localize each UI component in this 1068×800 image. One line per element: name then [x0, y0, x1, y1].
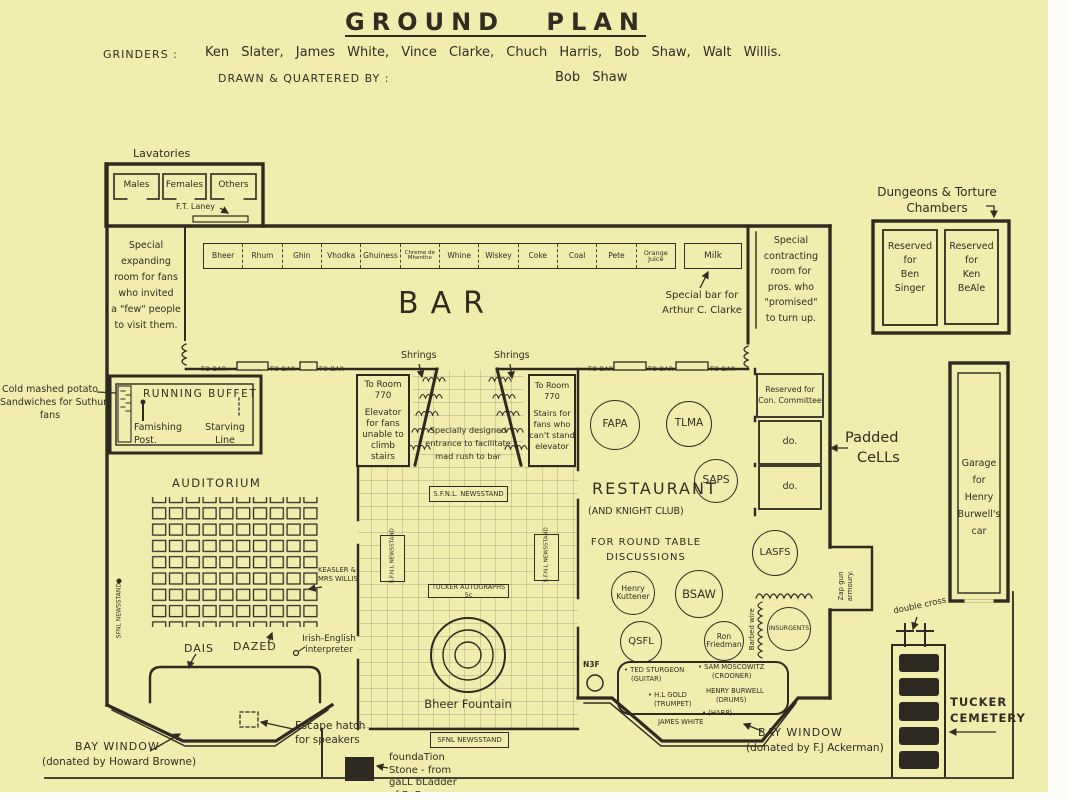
drawn-by-name: Bob Shaw — [555, 70, 627, 86]
shelf-item: Coal — [557, 244, 596, 268]
knight-club-subtitle: (AND KNIGHT CLUB) — [588, 506, 684, 517]
entrance-note: Specially designed entrance to facilitat… — [418, 424, 518, 463]
shelf-item: Coke — [518, 244, 557, 268]
band-james-white: (HARP) JAMES WHITE — [658, 709, 732, 726]
barbed-wire-label: Barbed wire — [748, 597, 756, 661]
auditorium-title: AUDITORIUM — [172, 477, 261, 491]
room-males-label: Males — [114, 180, 159, 191]
round-table-note: FOR ROUND TABLE DISCUSSIONS — [590, 535, 702, 565]
band-henry-burwell: HENRY BURWELL (DRUMS) — [706, 687, 764, 704]
band-hl-gold: H.L GOLD (TRUMPET) — [648, 691, 692, 708]
auditorium-seats — [150, 497, 318, 627]
table-qsfl: QSFL — [620, 621, 662, 663]
ground-plan-page: GROUND PLAN GRINDERS : Ken Slater, James… — [0, 0, 1068, 800]
newsstand-top: S.F.N.L. NEWSSTAND — [429, 486, 508, 502]
to-bar-label: TO BAR — [588, 366, 614, 373]
shelf-item: Ghuiness — [360, 244, 399, 268]
table-insurgents: INSURGENTS — [767, 607, 811, 651]
con-committee-cell: Reserved for Con. Committee — [757, 384, 823, 406]
tucker-autographs-stand: TUCKER AUTOGRAPHS 5c — [428, 584, 509, 598]
auditorium-newsstand-label: SFNL NEWSSTAND — [115, 581, 122, 641]
keasler-willis-label: KEASLER & MRS WILLIS — [318, 566, 358, 584]
shelf-item: Wiskey — [478, 244, 517, 268]
shelf-item: Chreme de Mhenthe — [400, 244, 439, 268]
escape-hatch-label: Escape hatch for speakers — [295, 719, 365, 747]
table-lasfs: LASFS — [752, 530, 798, 576]
zap-gun-armoury-label: Zap gun armoury. — [837, 556, 855, 616]
laney-label: F.T. Laney — [176, 202, 215, 212]
mashed-potato-note: Cold mashed potato Sandwiches for Suthun… — [0, 383, 100, 422]
table-n3f-label: N3F — [583, 660, 600, 669]
to-bar-label: TO BAR — [319, 366, 345, 373]
to-bar-label: TO BAR — [648, 366, 674, 373]
dazed-label: DAZED — [233, 640, 277, 653]
shelf-item: Rhum — [242, 244, 281, 268]
contracting-room-note: Special contracting room for pros. who "… — [754, 233, 828, 326]
page-margin-bottom — [0, 792, 1068, 800]
elevator-room-label: To Room 770 Elevator for fans unable to … — [357, 380, 409, 463]
room-females-label: Females — [163, 180, 206, 191]
to-bar-label: TO BAR — [201, 366, 227, 373]
springs-label-right: Shrings — [494, 350, 530, 361]
page-title: GROUND PLAN — [345, 8, 646, 37]
drawn-by-label: DRAWN & QUARTERED BY : — [218, 72, 389, 85]
famishing-post-label: Famishing Post. — [134, 421, 182, 447]
table-kuttener: Henry Kuttener — [611, 571, 655, 615]
to-bar-label: TO BAR — [270, 366, 296, 373]
page-margin-right — [1048, 0, 1068, 800]
bay-window-left-label: BAY WINDOW — [75, 740, 160, 753]
laney-arrow — [220, 208, 228, 213]
table-saps: SAPS — [694, 459, 738, 503]
ditto-cell-1: do. — [759, 436, 821, 447]
interpreter-label: Irish-English interpreter — [298, 634, 360, 656]
dungeon-cell-ken-beale: Reserved for Ken BeAle — [945, 240, 998, 296]
escape-hatch-arrow — [261, 722, 293, 729]
starving-line-label: Starving Line — [202, 421, 248, 447]
band-ted-sturgeon: TED STURGEON (GUITAR) — [624, 666, 684, 683]
bay-window-right-credit: (donated by F.J Ackerman) — [746, 742, 884, 755]
to-bar-label: TO BAR — [710, 366, 736, 373]
milk-bar: Milk — [684, 243, 742, 269]
stairs-room-label: To Room 770 Stairs for fans who can't st… — [529, 380, 575, 452]
dungeon-cell-ben-singer: Reserved for Ben Singer — [883, 240, 937, 296]
newsstand-right-label: S.F.N.L NEWSSTAND — [544, 528, 551, 582]
tucker-cemetery-label: TUCKER CEMETERY — [950, 694, 1026, 726]
band-sam-moscowitz: SAM MOSCOWITZ (CROONER) — [698, 663, 764, 680]
padded-cells-label: Padded CeLLs — [845, 428, 900, 468]
lavatories-label: Lavatories — [133, 147, 190, 160]
shelf-item: Vhodka — [321, 244, 360, 268]
springs-label-left: Shrings — [401, 350, 437, 361]
credits-names: Ken Slater, James White, Vince Clarke, C… — [205, 45, 782, 61]
clarke-note: Special bar for Arthur C. Clarke — [648, 288, 756, 318]
shelf-item: Whine — [439, 244, 478, 268]
table-fapa: FAPA — [590, 400, 640, 450]
bar-shelf: Bheer Rhum Ghin Vhodka Ghuiness Chreme d… — [203, 243, 676, 269]
table-friedman: Ron Friedman — [704, 621, 744, 661]
dungeons-label: Dungeons & Torture Chambers — [862, 184, 1012, 216]
table-bsaw: BSAW — [675, 570, 723, 618]
ditto-cell-2: do. — [759, 481, 821, 492]
bay-window-right-label: BAY WINDOW — [758, 726, 843, 739]
bay-window-left-credit: (donated by Howard Browne) — [42, 756, 196, 769]
dais-label: DAIS — [184, 642, 214, 655]
running-buffet-label: RUNNING BUFFET — [143, 388, 257, 401]
double-cross-arrow — [913, 617, 917, 629]
shelf-item: Ghin — [282, 244, 321, 268]
shelf-item: Bheer — [204, 244, 242, 268]
room-others-label: Others — [211, 180, 256, 191]
shelf-item: Pete — [596, 244, 635, 268]
shelf-item: Orange Juice — [636, 244, 675, 268]
clarke-arrow — [700, 272, 708, 288]
foundation-arrow — [377, 766, 388, 768]
table-tlma: TLMA — [666, 401, 712, 447]
bar-title: BAR — [398, 286, 496, 322]
expanding-room-note: Special expanding room for fans who invi… — [107, 238, 185, 334]
bheer-fountain-label: Bheer Fountain — [420, 698, 516, 712]
newsstand-left-label: S.F.N.L NEWSSTAND — [390, 529, 397, 583]
newsstand-bottom: SFNL NEWSSTAND — [430, 732, 509, 748]
garage-label: Garage for Henry Burwell's car — [952, 455, 1006, 540]
credits-label: GRINDERS : — [103, 48, 178, 61]
